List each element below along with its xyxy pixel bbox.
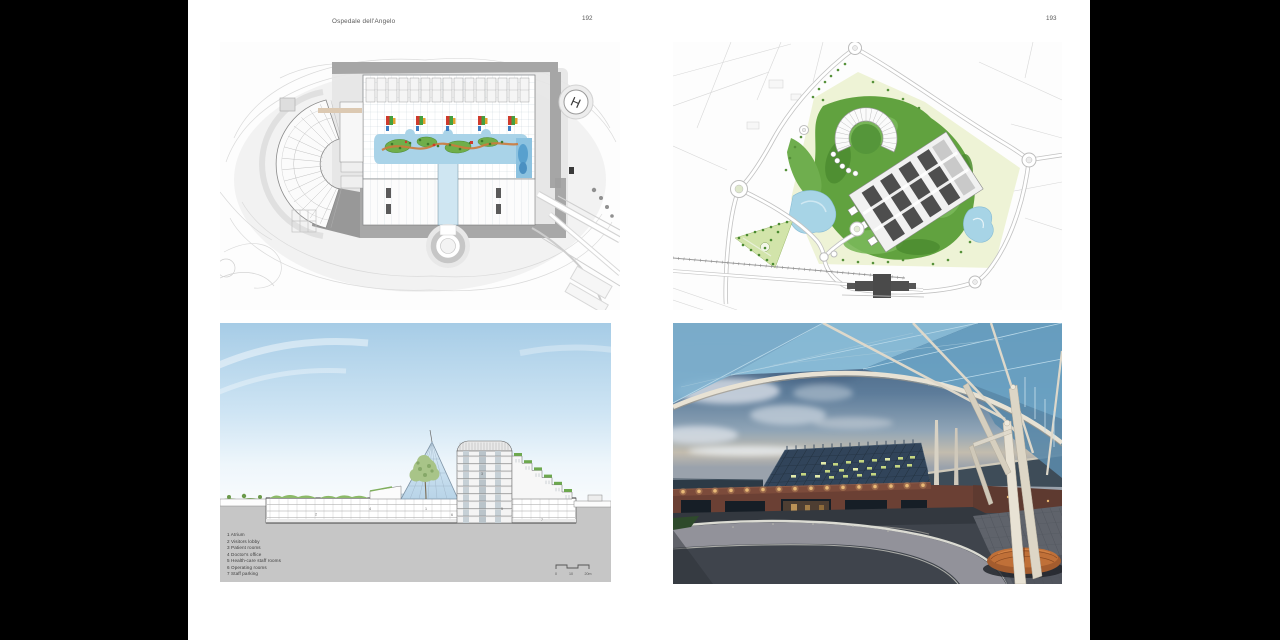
legend-item: 7 Staff parking [227,571,281,578]
figure-site-plan [673,42,1062,310]
book-photo-background: Ospedale dell'Angelo 192 193 [0,0,1280,640]
figure-photo-entrance [673,323,1062,584]
book-page-spread: Ospedale dell'Angelo 192 193 [188,0,1090,640]
scale-tick-20: 20m [585,572,592,576]
figure-section: 1 2 3 4 5 6 7 0 10 20m 1 Atrium 2 Visito… [220,323,611,582]
roundabout [426,224,470,268]
svg-text:7: 7 [541,518,543,522]
floor-plan-drawing: H [220,42,620,310]
running-header-title: Ospedale dell'Angelo [332,18,395,25]
page-number-left: 192 [582,15,593,22]
legend-item: 5 Health-care staff rooms [227,558,281,565]
svg-text:4: 4 [369,507,371,511]
svg-text:6: 6 [451,513,453,517]
section-legend: 1 Atrium 2 Visitors lobby 3 Patient room… [227,532,281,578]
svg-text:1: 1 [425,507,427,511]
scale-tick-10: 10 [569,572,573,576]
tower-section [457,441,512,523]
figure-floor-plan: H [220,42,620,310]
site-plan-drawing [673,42,1062,310]
svg-text:2: 2 [315,513,317,517]
page-number-right: 193 [1046,15,1057,22]
svg-text:3: 3 [481,472,483,476]
svg-text:5: 5 [501,507,503,511]
helipad: H [559,85,593,119]
scale-tick-0: 0 [555,572,557,576]
entrance-photo [673,323,1062,584]
